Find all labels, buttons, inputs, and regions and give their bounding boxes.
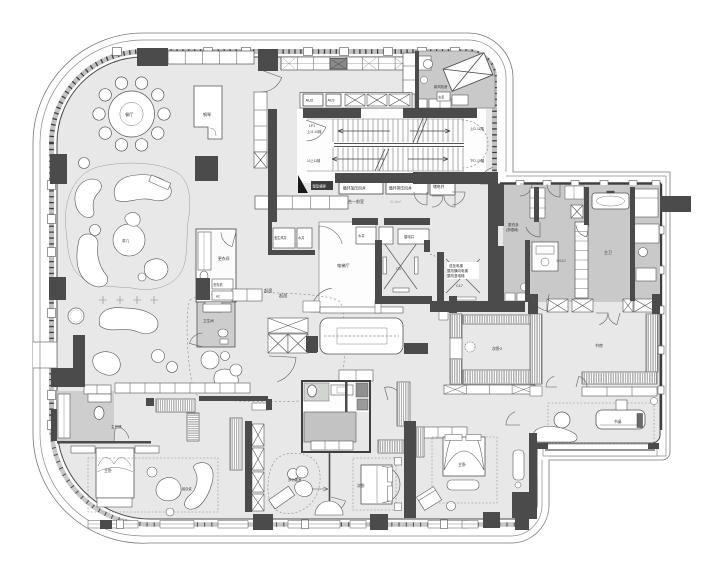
svg-text:储电井: 储电井 — [433, 184, 445, 189]
svg-text:钢琴: 钢琴 — [203, 111, 211, 117]
svg-text:组合桌: 组合桌 — [182, 486, 192, 491]
svg-text:新风机房: 新风机房 — [434, 84, 448, 89]
svg-text:水泵: 水泵 — [438, 95, 445, 100]
svg-text:宝生风井: 宝生风井 — [274, 235, 287, 240]
svg-text:更衣多: 更衣多 — [508, 222, 519, 227]
svg-text:卫生间: 卫生间 — [203, 318, 214, 323]
svg-text:书房: 书房 — [595, 342, 603, 348]
svg-text:洗衣机: 洗衣机 — [213, 282, 223, 287]
svg-text:C1: C1 — [396, 266, 402, 271]
svg-text:餐厅: 餐厅 — [125, 111, 133, 118]
svg-text:主卫: 主卫 — [604, 249, 612, 255]
svg-text:多功能室: 多功能室 — [288, 477, 302, 482]
svg-text:AU3: AU3 — [328, 99, 335, 103]
svg-text:LP1: LP1 — [309, 124, 315, 128]
svg-text:茶几: 茶几 — [122, 238, 130, 243]
svg-text:主卧: 主卧 — [104, 467, 112, 473]
svg-text:(衣帽间): (衣帽间) — [506, 227, 518, 232]
svg-text:31.5m²: 31.5m² — [390, 200, 402, 204]
svg-text:上D-11階: 上D-11階 — [470, 126, 484, 131]
svg-text:整改竖电梯: 整改竖电梯 — [447, 273, 465, 278]
svg-text:上11·10梯: 上11·10梯 — [307, 129, 322, 134]
svg-text:循环加压风井: 循环加压风井 — [343, 186, 366, 191]
svg-text:C17: C17 — [456, 284, 463, 288]
svg-text:主卧: 主卧 — [458, 461, 466, 467]
svg-text:水井: 水井 — [358, 233, 365, 238]
svg-text:次卧: 次卧 — [357, 482, 365, 488]
svg-text:循环排压风井: 循环排压风井 — [389, 186, 412, 191]
svg-text:更衣间: 更衣间 — [218, 256, 230, 261]
svg-text:AU2: AU2 — [306, 98, 315, 103]
svg-text:下D-10階: 下D-10階 — [470, 158, 485, 163]
svg-text:A2: A2 — [216, 295, 220, 299]
svg-text:10上11梯: 10上11梯 — [307, 158, 321, 163]
svg-text:水井: 水井 — [298, 235, 304, 240]
svg-text:次卧2: 次卧2 — [492, 345, 503, 351]
svg-text:1911G: 1911G — [556, 259, 566, 263]
svg-text:送至电梯: 送至电梯 — [449, 263, 463, 268]
svg-text:整垫横移: 整垫横移 — [313, 184, 327, 189]
svg-text:整改横向电梯: 整改横向电梯 — [447, 268, 468, 273]
svg-text:电梯厅: 电梯厅 — [337, 262, 350, 269]
svg-text:书桌: 书桌 — [614, 419, 622, 424]
svg-text:循电井: 循电井 — [404, 234, 415, 239]
